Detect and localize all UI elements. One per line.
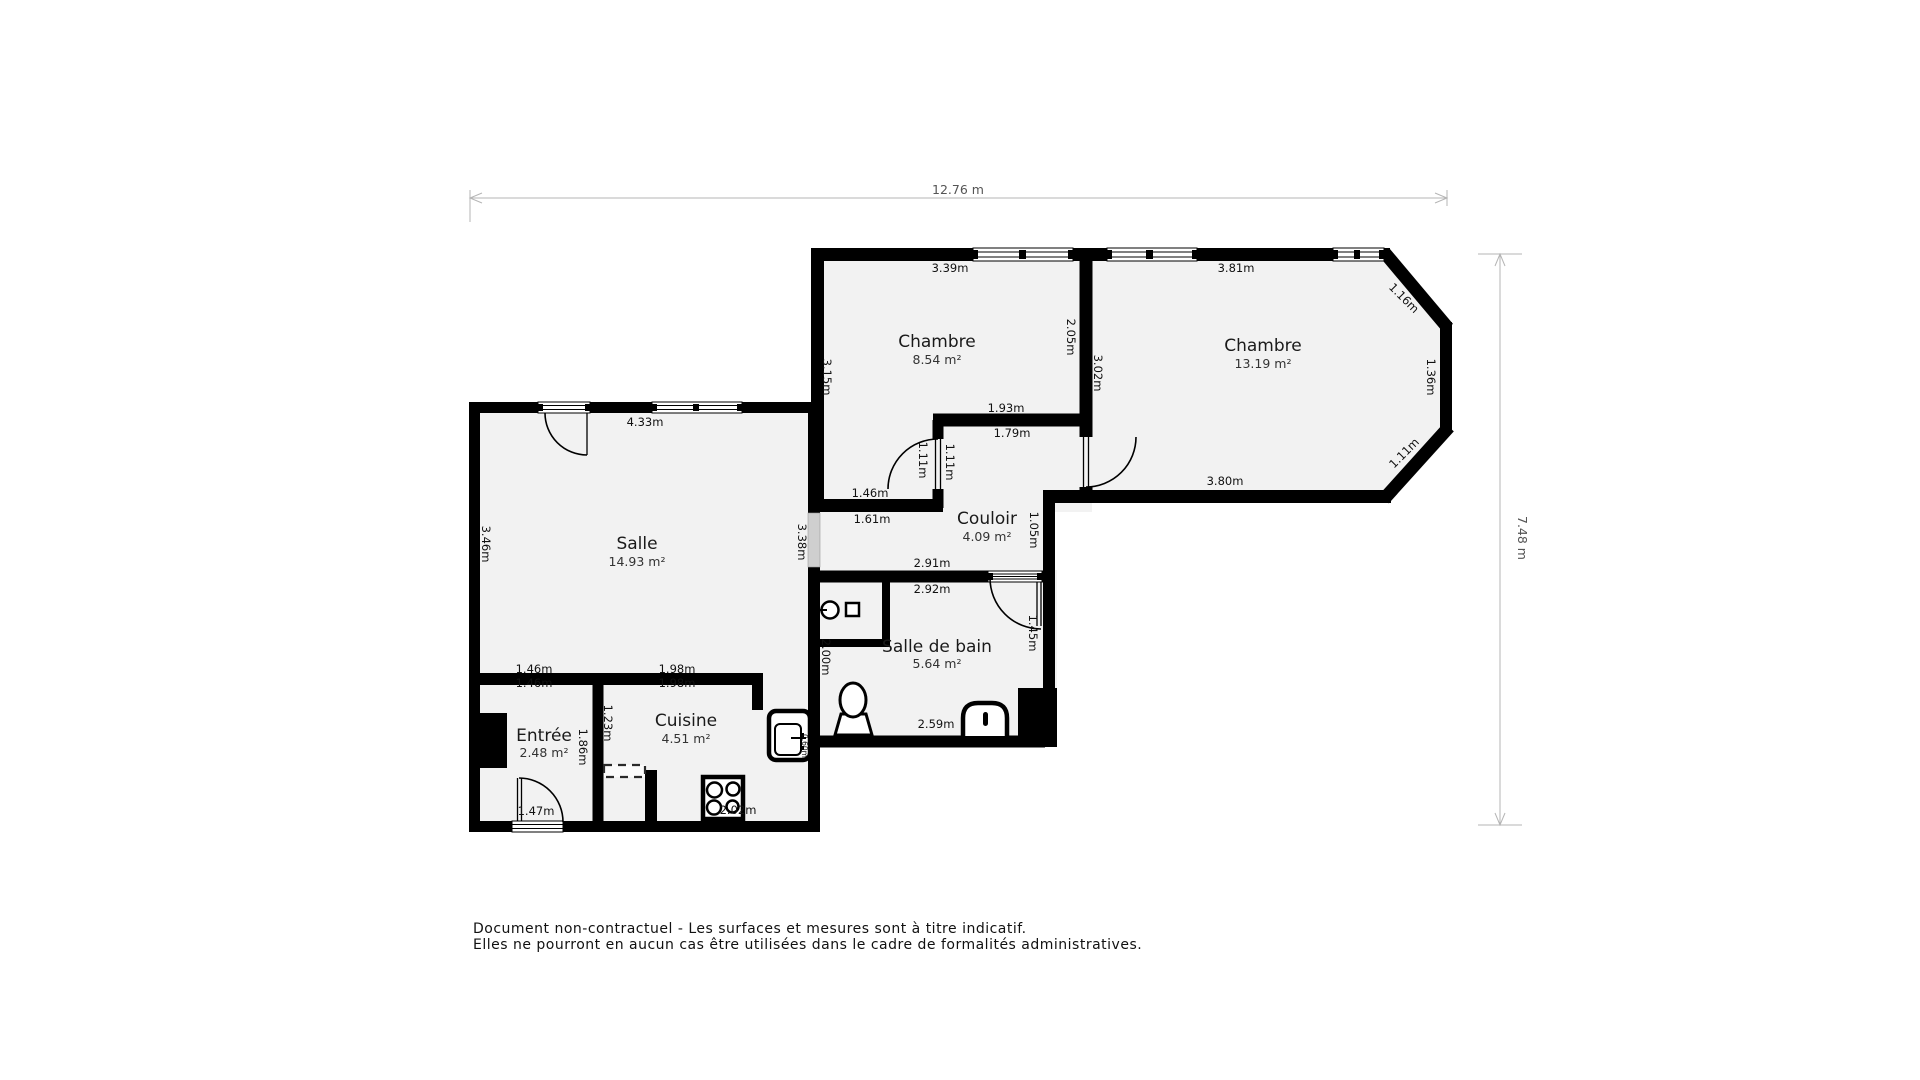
dim-label: 2.05m: [1064, 319, 1078, 356]
window-chambre2-b: [1333, 248, 1384, 261]
footer-line-2: Elles ne pourront en aucun cas être util…: [473, 937, 1142, 953]
dim-label: 1.47m: [518, 804, 555, 818]
dim-label: 2.92m: [914, 582, 951, 596]
dim-label: 1.98m: [659, 676, 696, 690]
dim-label: 3.02m: [1091, 355, 1105, 392]
dim-label: 4.33m: [627, 415, 664, 429]
room-name-salle: Salle: [616, 534, 657, 554]
room-area-chambre-1: 8.54 m²: [913, 352, 962, 367]
dim-label: 3.15m: [820, 359, 834, 396]
overall-width-label: 12.76 m: [932, 182, 984, 197]
wall-bathroom-corner-block: [1018, 688, 1057, 747]
dim-label: 1.93m: [988, 401, 1025, 415]
dim-label: 3.81m: [1218, 261, 1255, 275]
dim-label: 1.05m: [1027, 512, 1041, 549]
room-name-couloir: Couloir: [957, 509, 1017, 529]
dim-label: 0.60m: [800, 734, 809, 758]
dim-label: 1.45m: [1026, 615, 1040, 652]
dim-label: 3.39m: [932, 261, 969, 275]
dim-label: 3.46m: [479, 526, 493, 563]
dim-label: 2.00m: [819, 639, 833, 676]
room-name-chambre-1: Chambre: [898, 332, 976, 352]
floorplan-page: 12.76 m 7.48 m Chambre 8.54 m² Chambre 1…: [0, 0, 1920, 1080]
room-area-salle: 14.93 m²: [609, 554, 666, 569]
footer-line-1: Document non-contractuel - Les surfaces …: [473, 921, 1027, 937]
overall-height-label: 7.48 m: [1515, 516, 1530, 560]
room-area-entree: 2.48 m²: [520, 745, 569, 760]
opening-closet-dashed: [604, 765, 645, 777]
wall-pillar-entree: [469, 713, 507, 768]
dim-label: 2.91m: [914, 556, 951, 570]
room-area-chambre-2: 13.19 m²: [1235, 356, 1292, 371]
room-area-salle-de-bain: 5.64 m²: [913, 656, 962, 671]
dim-label: 3.38m: [795, 524, 809, 561]
dim-label: 1.23m: [601, 705, 615, 742]
window-chambre1: [973, 248, 1073, 261]
dim-label: 1.11m: [943, 444, 957, 481]
dim-label: 1.46m: [852, 486, 889, 500]
dim-label: 2.02m: [720, 803, 757, 817]
window-salle-b: [652, 402, 742, 413]
pedestal-sink-icon: [963, 703, 1007, 736]
dim-label: 1.79m: [994, 426, 1031, 440]
room-name-cuisine: Cuisine: [655, 711, 717, 731]
dim-label: 2.59m: [918, 717, 955, 731]
dim-label: 1.46m: [516, 662, 553, 676]
room-name-salle-de-bain: Salle de bain: [882, 637, 992, 657]
dim-label: 1.86m: [576, 729, 590, 766]
room-area-cuisine: 4.51 m²: [662, 731, 711, 746]
floorplan-canvas: 12.76 m 7.48 m Chambre 8.54 m² Chambre 1…: [0, 0, 1920, 1080]
dim-label: 1.11m: [916, 442, 930, 479]
footer-disclaimer: Document non-contractuel - Les surfaces …: [473, 921, 1142, 953]
room-name-chambre-2: Chambre: [1224, 336, 1302, 356]
dim-label: 1.36m: [1424, 359, 1438, 396]
window-salle-a: [538, 402, 590, 413]
dim-label: 1.61m: [854, 512, 891, 526]
room-area-couloir: 4.09 m²: [963, 529, 1012, 544]
window-chambre2-a: [1107, 248, 1197, 261]
dim-label: 3.80m: [1207, 474, 1244, 488]
dim-label: 1.98m: [659, 662, 696, 676]
room-name-entree: Entrée: [516, 726, 572, 746]
dim-label: 1.46m: [516, 676, 553, 690]
